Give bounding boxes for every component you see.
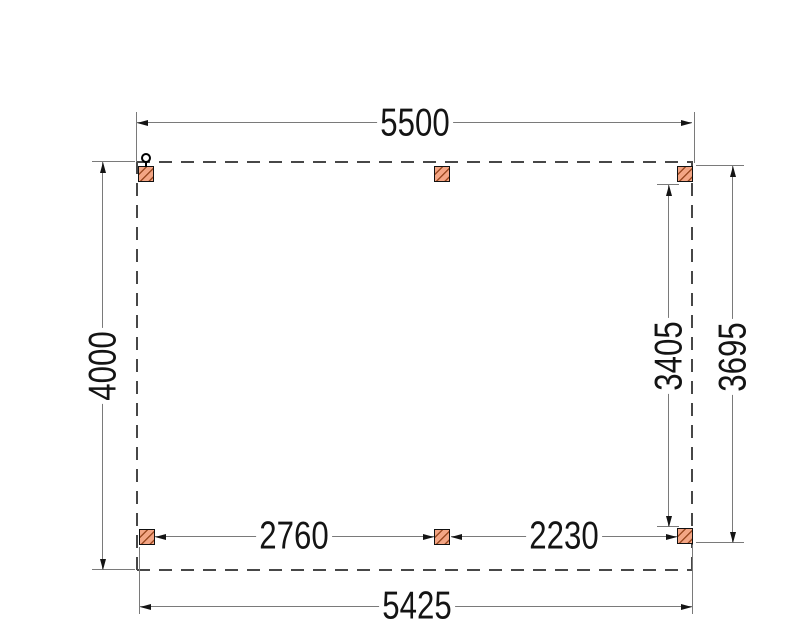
post-top-middle xyxy=(434,166,450,182)
post-bottom-right xyxy=(677,528,693,544)
dimension-label-bottom-beam: 5425 xyxy=(379,587,455,626)
dimension-label-right-outer: 3695 xyxy=(714,319,753,395)
arrowhead-3695-top xyxy=(730,166,736,177)
roof-outline-top-edge xyxy=(137,161,693,163)
roof-outline-bottom-edge xyxy=(137,569,693,571)
arrowhead-5425-right xyxy=(681,604,692,610)
arrowhead-5500-right xyxy=(681,120,692,126)
arrowhead-5500-left xyxy=(137,120,148,126)
floor-plan-canvas: 5500 4000 3405 3695 2760 2230 5425 xyxy=(0,0,800,640)
arrowhead-5425-left xyxy=(140,604,151,610)
arrowhead-3405-bottom xyxy=(666,516,672,527)
extension-line-5500-right xyxy=(694,112,695,163)
arrowhead-3695-bottom xyxy=(730,532,736,543)
roof-outline-right-edge xyxy=(691,161,693,571)
circle-marker-icon xyxy=(141,153,151,163)
dimension-label-bottom-right-span: 2230 xyxy=(526,517,602,556)
post-bottom-middle xyxy=(434,529,450,545)
arrowhead-2760-left xyxy=(155,534,166,540)
post-top-right xyxy=(677,166,693,182)
extension-line-4000-bottom xyxy=(92,569,135,570)
post-bottom-left xyxy=(139,529,155,545)
dimension-label-top-width: 5500 xyxy=(377,104,453,143)
arrowhead-2760-right xyxy=(423,534,434,540)
extension-line-3695-bottom xyxy=(696,542,744,543)
roof-outline-left-edge xyxy=(136,161,138,571)
arrowhead-4000-top xyxy=(100,162,106,173)
extension-line-5425-right xyxy=(692,545,693,614)
arrowhead-4000-bottom xyxy=(100,559,106,570)
dimension-label-left-depth: 4000 xyxy=(84,328,123,404)
extension-line-4000-top xyxy=(92,161,135,162)
extension-line-3695-top xyxy=(696,165,744,166)
dimension-label-right-inner: 3405 xyxy=(650,318,689,394)
dimension-label-bottom-left-span: 2760 xyxy=(256,517,332,556)
post-top-left xyxy=(138,166,154,182)
arrowhead-2230-right xyxy=(666,534,677,540)
arrowhead-3405-top xyxy=(666,185,672,196)
arrowhead-2230-left xyxy=(451,534,462,540)
